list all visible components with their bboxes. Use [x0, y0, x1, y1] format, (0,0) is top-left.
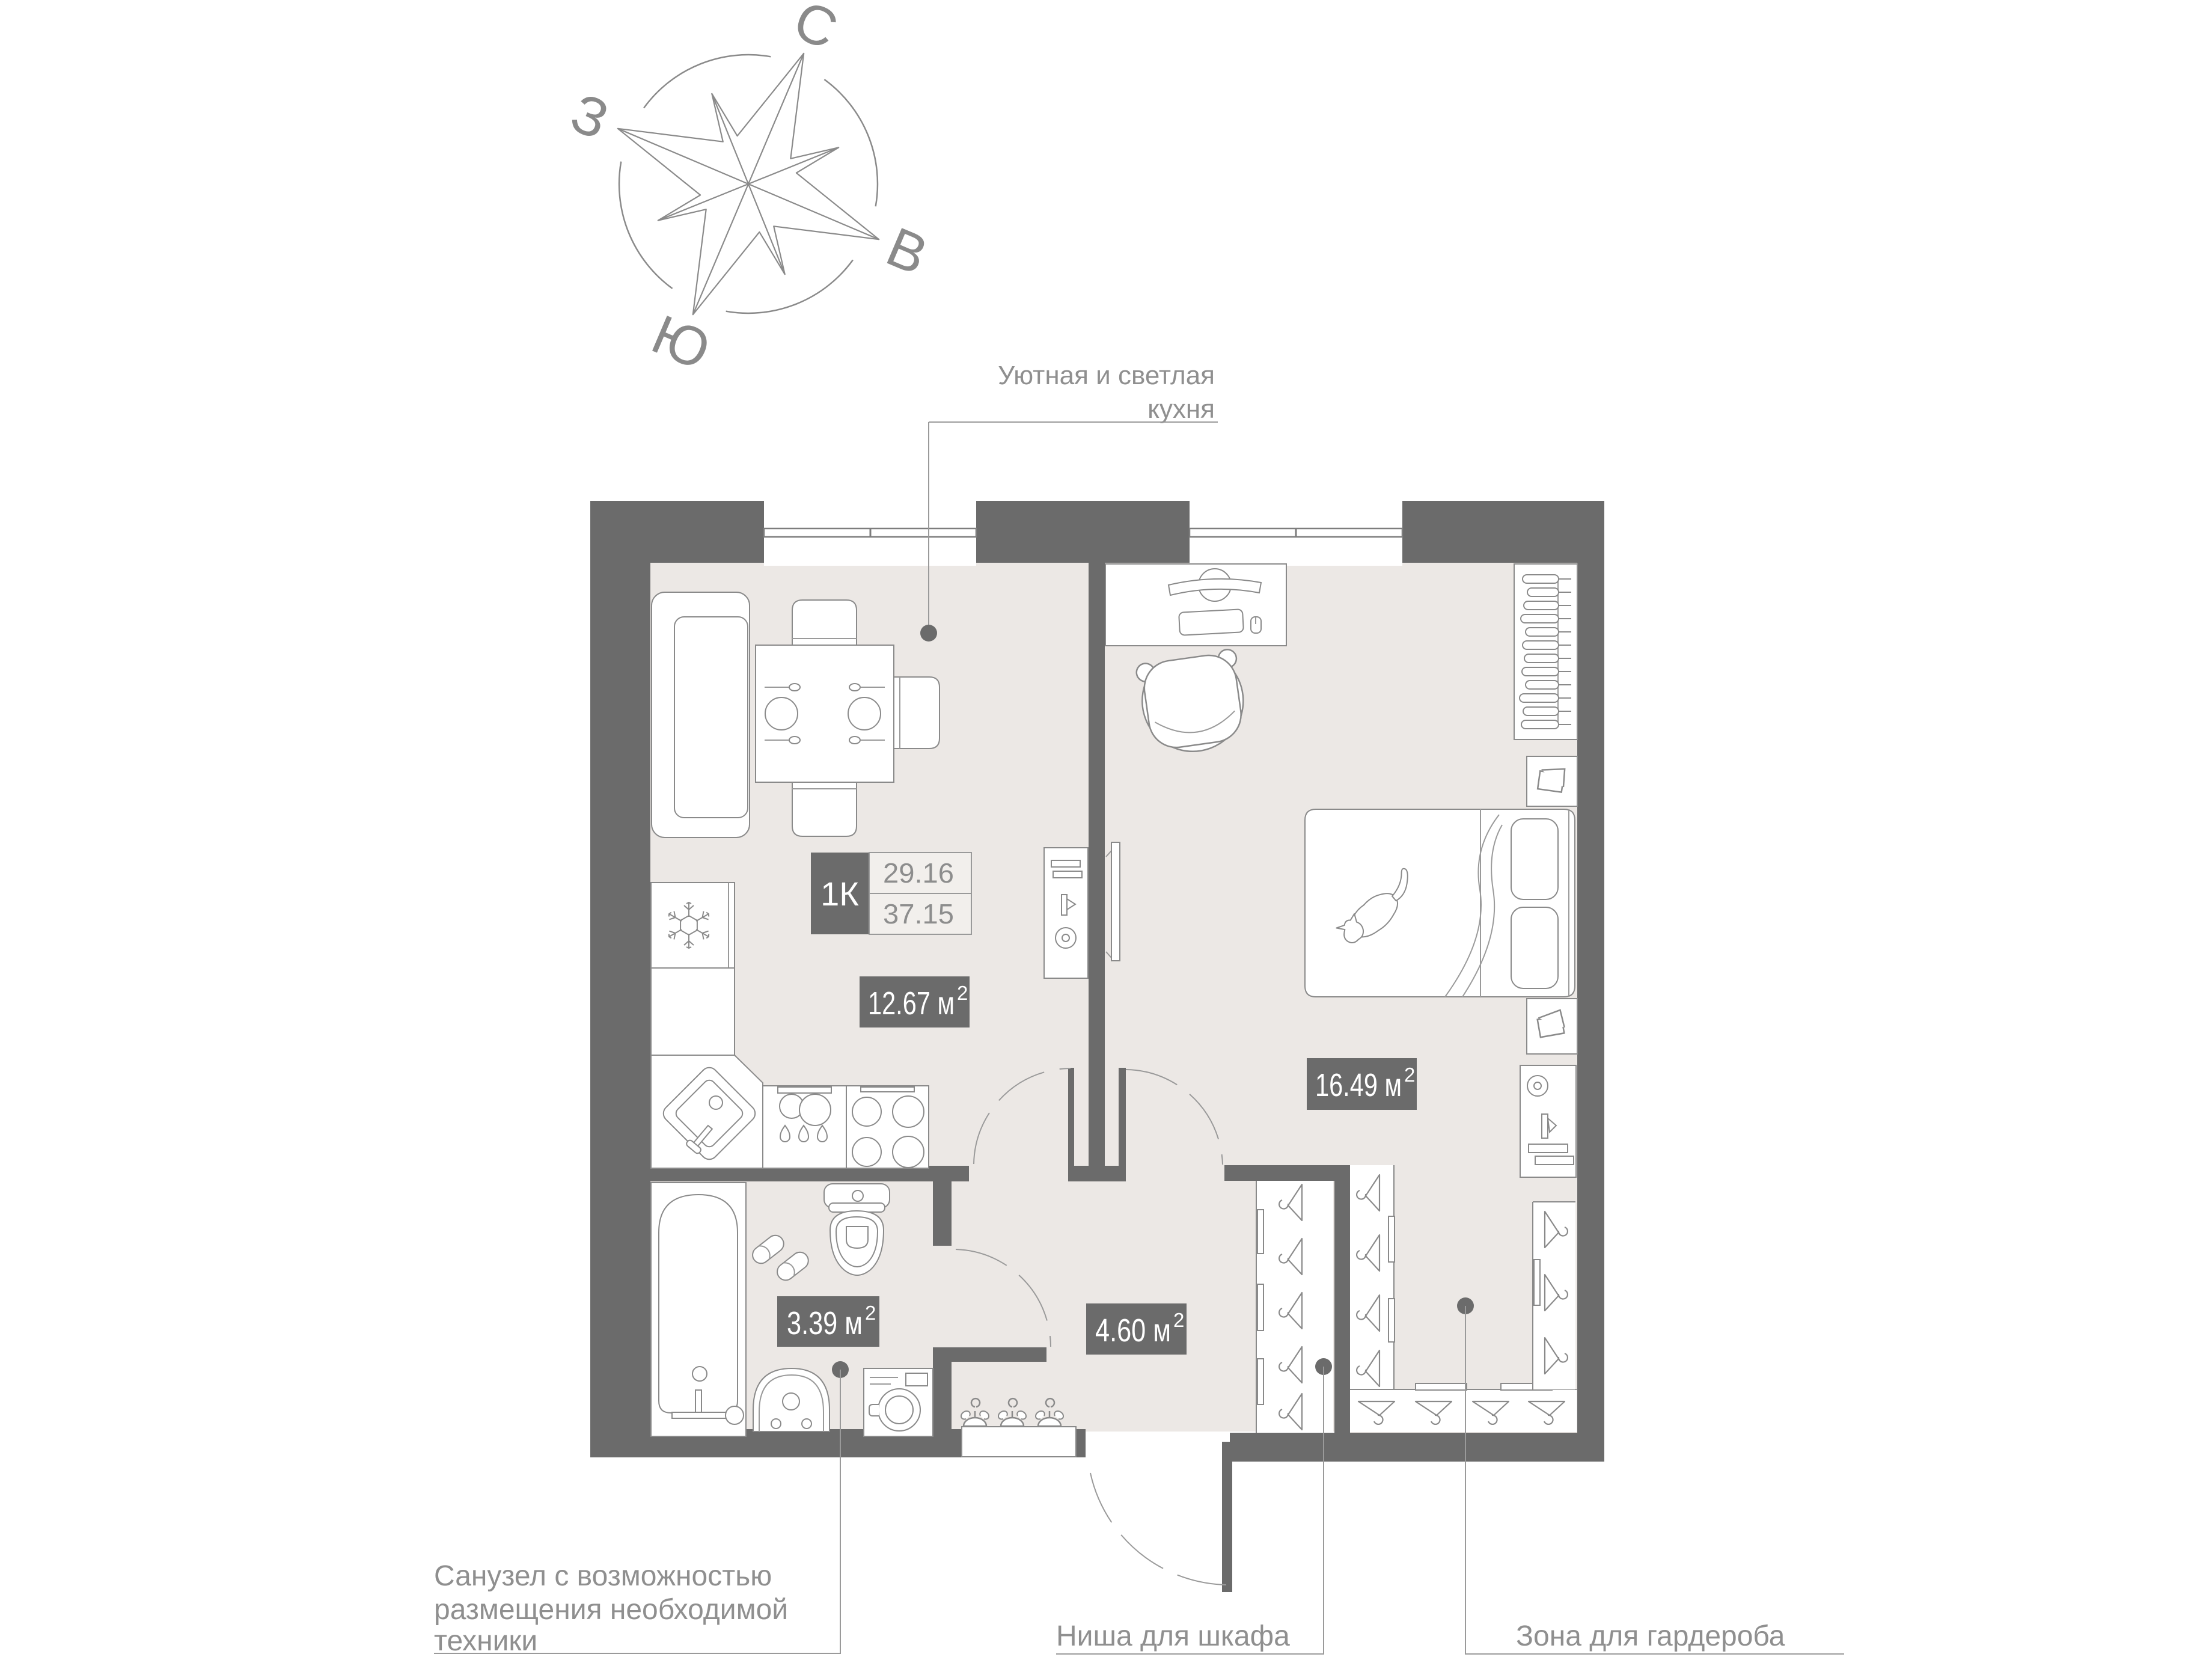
svg-text:Ниша для шкафа: Ниша для шкафа [1056, 1620, 1290, 1652]
svg-text:Уютная и светлая: Уютная и светлая [998, 361, 1215, 390]
svg-text:2: 2 [1173, 1309, 1184, 1331]
svg-text:29.16: 29.16 [883, 857, 954, 889]
svg-text:12.67 м: 12.67 м [868, 985, 955, 1021]
svg-text:3.39 м: 3.39 м [787, 1305, 863, 1341]
svg-text:Санузел с возможностью: Санузел с возможностью [434, 1560, 772, 1592]
svg-text:16.49 м: 16.49 м [1315, 1067, 1402, 1103]
svg-text:Зона для гардероба: Зона для гардероба [1516, 1620, 1785, 1652]
svg-text:1К: 1К [820, 875, 859, 913]
svg-text:2: 2 [865, 1302, 876, 1324]
svg-text:2: 2 [957, 982, 968, 1004]
svg-text:2: 2 [1404, 1064, 1415, 1086]
svg-text:техники: техники [434, 1625, 537, 1657]
svg-text:размещения необходимой: размещения необходимой [434, 1594, 788, 1626]
svg-text:4.60 м: 4.60 м [1095, 1312, 1171, 1349]
svg-text:37.15: 37.15 [883, 898, 954, 929]
svg-text:кухня: кухня [1147, 394, 1215, 424]
